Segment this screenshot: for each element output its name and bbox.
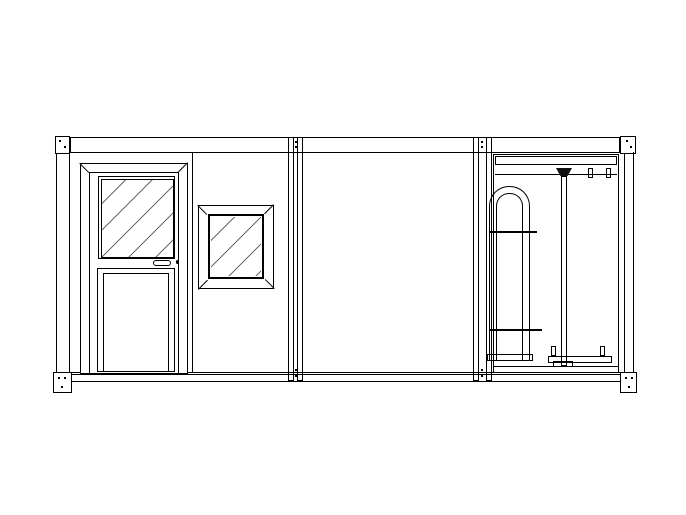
gate-crossbar-upper [489,231,537,233]
gate-crossbar-lower [489,329,542,331]
drawing-canvas [0,0,686,515]
turnstile-dynamic-layer[interactable] [0,0,686,515]
guide-tube-inner [496,193,523,360]
comb-bottom-rail [487,354,533,361]
